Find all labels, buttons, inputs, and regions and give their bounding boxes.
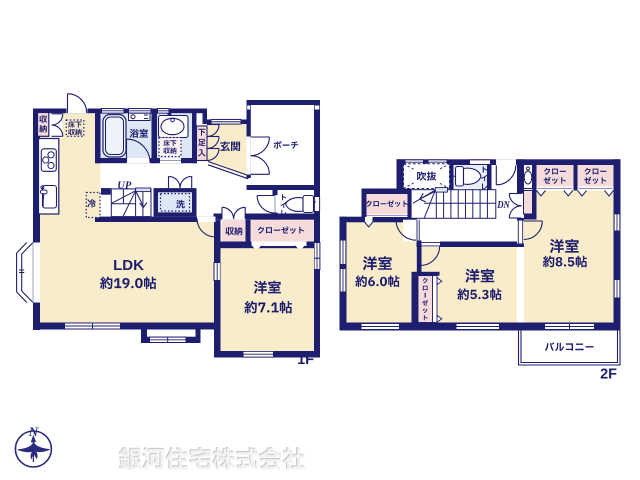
svg-text:UP: UP xyxy=(117,180,131,192)
svg-text:1F: 1F xyxy=(297,352,314,368)
svg-text:LDK: LDK xyxy=(113,257,144,274)
svg-text:N: N xyxy=(28,424,39,439)
svg-text:2F: 2F xyxy=(600,367,617,383)
svg-text:DN: DN xyxy=(497,199,511,211)
